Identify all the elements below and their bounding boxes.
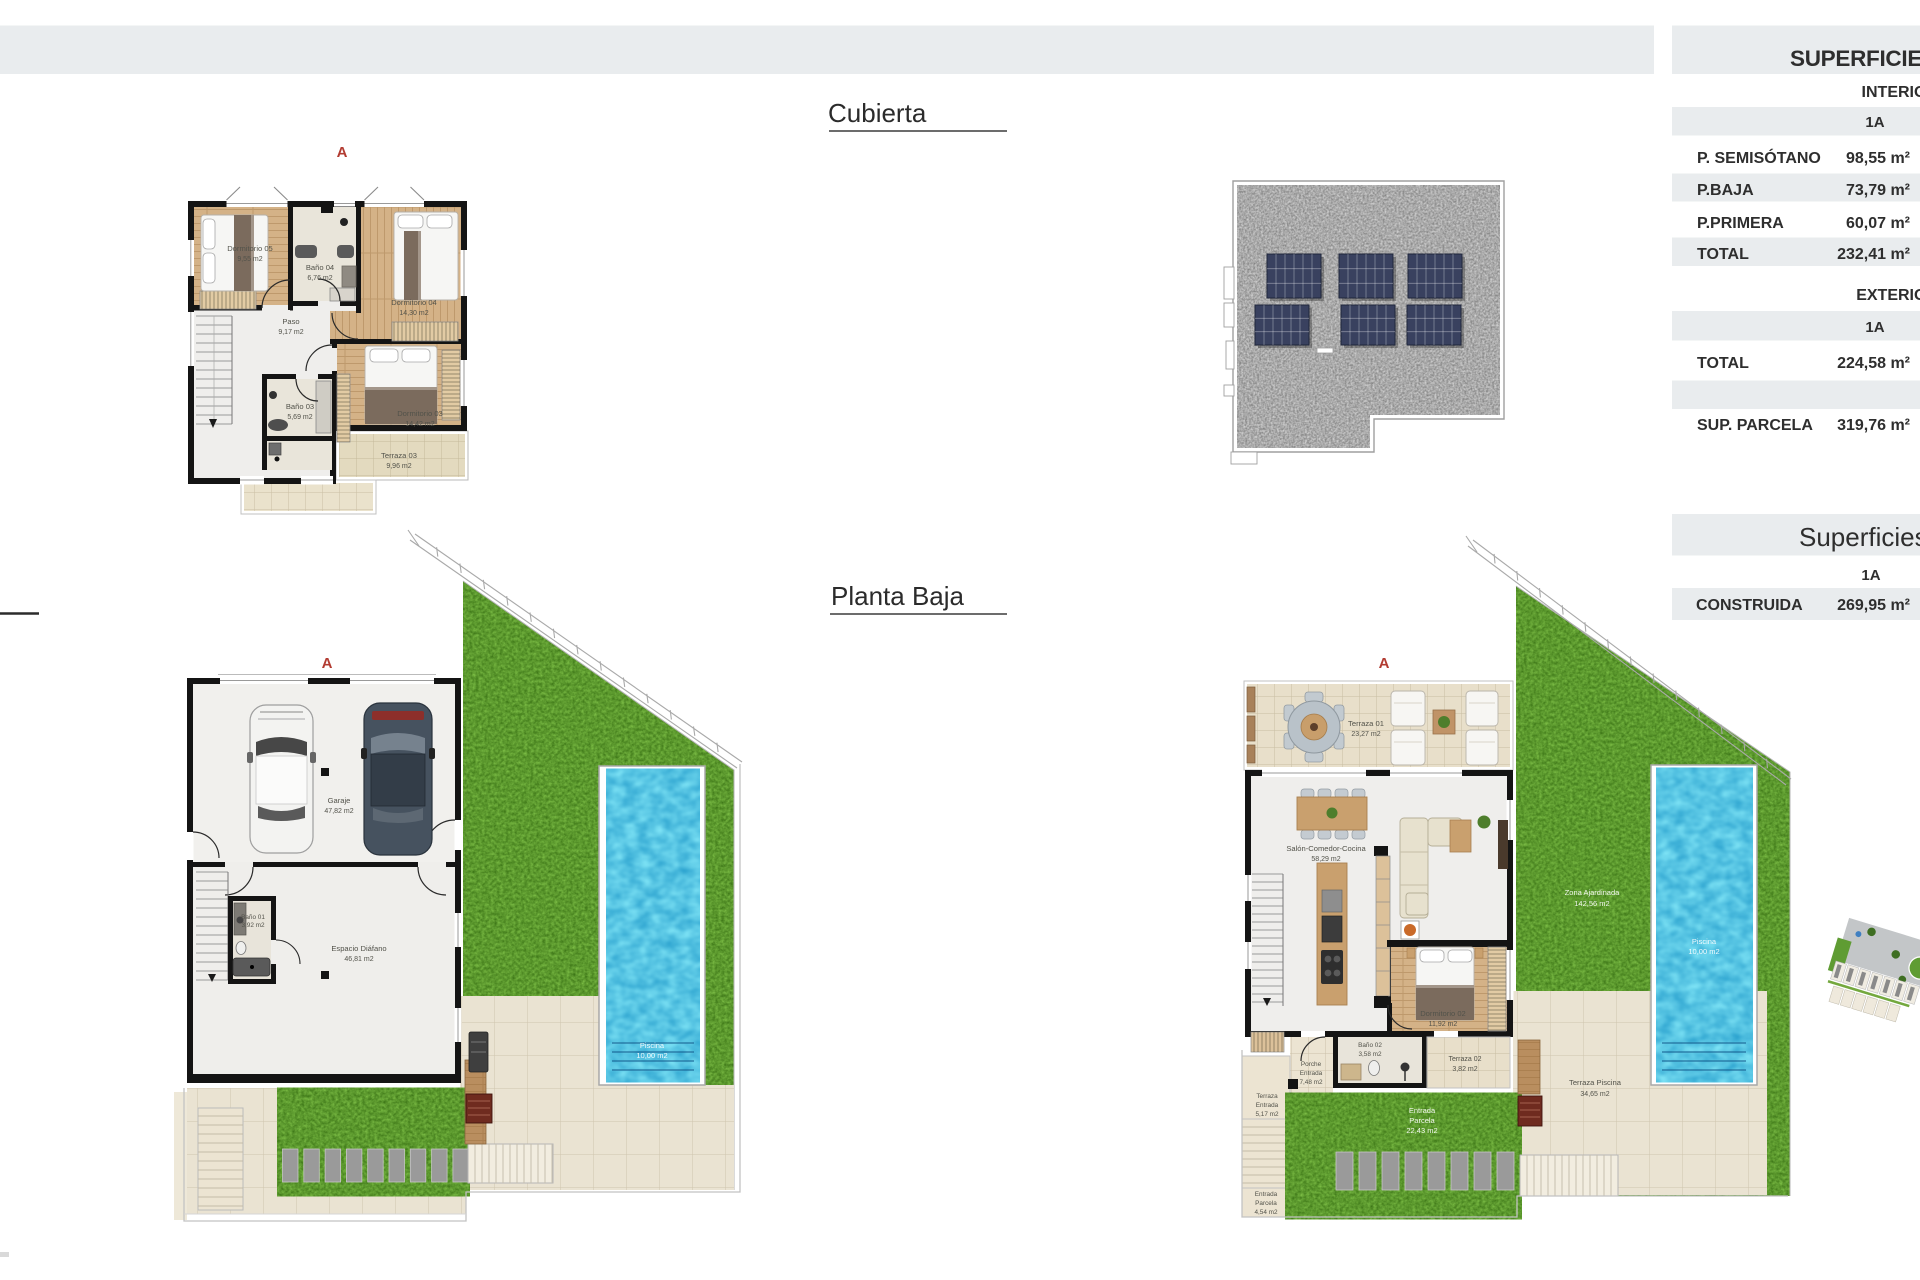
svg-text:4,54 m2: 4,54 m2: [1254, 1209, 1278, 1216]
svg-text:14,42 m2: 14,42 m2: [405, 421, 434, 428]
svg-text:Entrada: Entrada: [1409, 1106, 1436, 1115]
svg-text:Parcela: Parcela: [1409, 1116, 1435, 1125]
svg-text:P.PRIMERA: P.PRIMERA: [1697, 215, 1784, 232]
svg-text:Planta Baja: Planta Baja: [831, 581, 965, 611]
svg-text:Baño 02: Baño 02: [1358, 1042, 1382, 1049]
svg-text:P. SEMISÓTANO: P. SEMISÓTANO: [1697, 148, 1821, 167]
svg-text:Porche: Porche: [1301, 1061, 1322, 1068]
svg-text:58,29 m2: 58,29 m2: [1311, 856, 1340, 863]
svg-text:22,43 m2: 22,43 m2: [1406, 1126, 1437, 1135]
svg-text:Superficies: Superficies: [1799, 522, 1920, 552]
svg-text:A: A: [337, 144, 348, 161]
svg-text:Terraza 03: Terraza 03: [381, 451, 417, 460]
svg-text:11,92 m2: 11,92 m2: [1429, 1021, 1458, 1028]
svg-text:EXTERIOR: EXTERIOR: [1856, 287, 1920, 304]
svg-text:Espacio Diáfano: Espacio Diáfano: [331, 944, 386, 953]
svg-text:Piscina: Piscina: [1692, 937, 1717, 946]
svg-text:Entrada: Entrada: [1255, 1191, 1278, 1198]
svg-text:10,00 m2: 10,00 m2: [636, 1051, 667, 1060]
svg-text:Cubierta: Cubierta: [828, 98, 927, 128]
svg-text:Terraza Piscina: Terraza Piscina: [1569, 1078, 1622, 1087]
svg-text:P.BAJA: P.BAJA: [1697, 182, 1754, 199]
svg-text:46,81 m2: 46,81 m2: [344, 956, 373, 963]
svg-text:319,76 m²: 319,76 m²: [1837, 417, 1910, 434]
svg-text:60,07 m²: 60,07 m²: [1846, 215, 1910, 232]
svg-text:47,82 m2: 47,82 m2: [324, 808, 353, 815]
svg-text:Entrada: Entrada: [1300, 1070, 1323, 1077]
svg-text:Dormitorio 04: Dormitorio 04: [391, 298, 437, 307]
svg-text:5,17 m2: 5,17 m2: [1255, 1111, 1279, 1118]
svg-text:Terraza: Terraza: [1256, 1093, 1278, 1100]
svg-text:Piscina: Piscina: [640, 1041, 665, 1050]
svg-text:SUP. PARCELA: SUP. PARCELA: [1697, 417, 1813, 434]
svg-text:Parcela: Parcela: [1255, 1200, 1277, 1207]
svg-text:23,27 m2: 23,27 m2: [1351, 731, 1380, 738]
svg-text:Baño 03: Baño 03: [286, 402, 314, 411]
svg-text:Dormitorio 05: Dormitorio 05: [227, 244, 273, 253]
svg-text:5,69 m2: 5,69 m2: [287, 414, 312, 421]
svg-text:3,82 m2: 3,82 m2: [1452, 1066, 1477, 1073]
svg-text:14,30 m2: 14,30 m2: [399, 310, 428, 317]
svg-text:Zona Ajardinada: Zona Ajardinada: [1565, 888, 1620, 897]
svg-text:CONSTRUIDA: CONSTRUIDA: [1696, 597, 1803, 614]
svg-text:73,79 m²: 73,79 m²: [1846, 182, 1910, 199]
svg-text:9,96 m2: 9,96 m2: [386, 463, 411, 470]
svg-text:Dormitorio 02: Dormitorio 02: [1420, 1009, 1466, 1018]
svg-text:Dormitorio 03: Dormitorio 03: [397, 409, 443, 418]
svg-text:3,58 m2: 3,58 m2: [1358, 1051, 1382, 1058]
svg-text:Paso: Paso: [282, 317, 299, 326]
svg-text:9,17 m2: 9,17 m2: [278, 329, 303, 336]
svg-text:Terraza 01: Terraza 01: [1348, 719, 1384, 728]
svg-text:A: A: [1379, 655, 1390, 672]
svg-text:6,76 m2: 6,76 m2: [307, 275, 332, 282]
svg-text:1A: 1A: [1865, 114, 1884, 131]
svg-text:9,55 m2: 9,55 m2: [237, 256, 262, 263]
svg-text:224,58 m²: 224,58 m²: [1837, 355, 1910, 372]
svg-text:Baño 04: Baño 04: [306, 263, 334, 272]
svg-text:Terraza 02: Terraza 02: [1448, 1056, 1481, 1063]
svg-text:232,41 m²: 232,41 m²: [1837, 246, 1910, 263]
svg-text:Garaje: Garaje: [328, 796, 351, 805]
svg-text:1A: 1A: [1861, 567, 1880, 584]
svg-text:SUPERFICIES: SUPERFICIES: [1790, 46, 1920, 71]
svg-text:A: A: [322, 655, 333, 672]
svg-text:3,92 m2: 3,92 m2: [241, 922, 265, 929]
svg-text:Entrada: Entrada: [1256, 1102, 1279, 1109]
svg-text:INTERIOR: INTERIOR: [1862, 84, 1920, 101]
svg-text:TOTAL: TOTAL: [1697, 355, 1749, 372]
svg-text:TOTAL: TOTAL: [1697, 246, 1749, 263]
svg-text:Salón-Comedor-Cocina: Salón-Comedor-Cocina: [1286, 844, 1366, 853]
svg-text:1A: 1A: [1865, 319, 1884, 336]
svg-text:142,56 m2: 142,56 m2: [1574, 899, 1609, 908]
svg-text:7,48 m2: 7,48 m2: [1299, 1079, 1323, 1086]
svg-text:Baño 01: Baño 01: [241, 914, 265, 921]
svg-text:34,65 m2: 34,65 m2: [1580, 1091, 1609, 1098]
svg-text:269,95 m²: 269,95 m²: [1837, 597, 1910, 614]
svg-text:98,55 m²: 98,55 m²: [1846, 150, 1910, 167]
svg-text:10,00 m2: 10,00 m2: [1688, 947, 1719, 956]
